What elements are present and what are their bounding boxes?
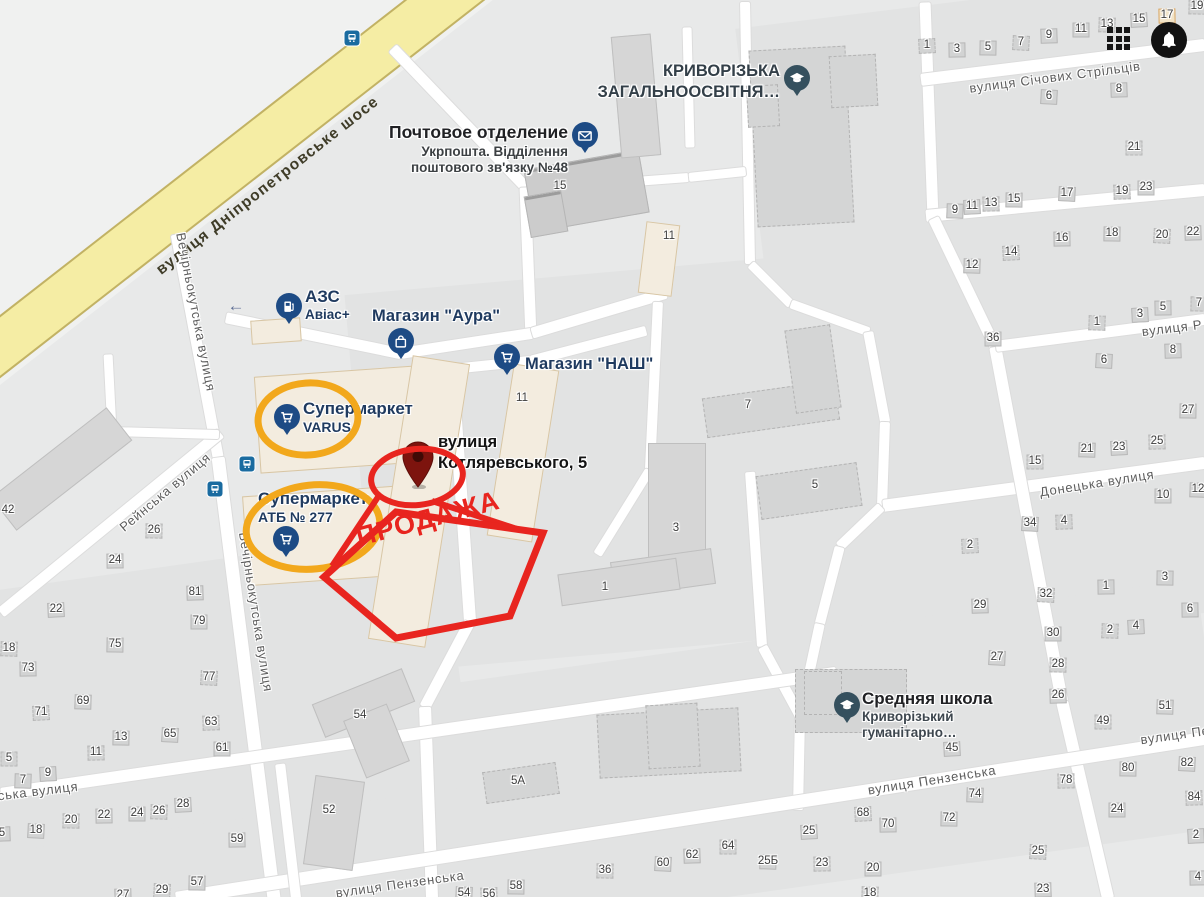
house-number: 21 [1128,141,1141,153]
house-number: 18 [30,824,43,836]
house-number: 27 [991,651,1004,663]
house-number: 10 [1157,489,1170,501]
house-number: 11 [1075,23,1087,35]
poi-label-azs-avias[interactable]: АЗСАвіас+ [305,286,350,323]
house-number: 1 [1094,316,1100,328]
poi-pin-supermarket-varus[interactable] [272,404,302,434]
poi-label-magazin-nash[interactable]: Магазин "НАШ" [525,354,653,375]
poi-pin-post-office[interactable] [570,122,600,152]
oneway-arrow-icon: ← [228,296,245,316]
poi-title: Магазин "НАШ" [525,354,653,375]
house-number: 34 [1024,517,1037,529]
destination-label[interactable]: вулицяКотляревського, 5 [438,432,587,473]
house-number: 12 [966,259,979,271]
house-number: 4 [1061,515,1067,527]
house-number: 27 [117,889,130,897]
building [524,190,569,238]
house-number: 73 [22,662,35,674]
house-number: 9 [952,204,958,216]
street-label: Рейнська вулиця [117,450,214,535]
house-number: 57 [191,876,204,888]
house-number: 74 [969,788,982,800]
house-number: 13 [115,731,128,743]
house-number: 51 [1159,700,1172,712]
house-number: 22 [1187,226,1200,238]
house-number: 49 [1097,715,1110,727]
house-number: 26 [148,524,161,536]
poi-pin-tail [283,315,295,324]
transit-stop-icon[interactable] [208,482,223,497]
house-number: 26 [1052,689,1065,701]
house-number: 20 [65,814,78,826]
house-number: 63 [205,716,218,728]
house-number: 6 [1101,354,1107,366]
house-number: 6 [1187,603,1193,615]
house-number: 15 [1008,193,1021,205]
poi-title: Магазин "Аура" [372,306,500,327]
house-number: 60 [657,857,670,869]
house-number: 5 [0,827,5,839]
poi-title: ЗАГАЛЬНООСВІТНЯ… [598,82,780,103]
poi-title: Супермаркет [258,488,368,509]
house-number: 18 [3,642,16,654]
house-number: 15 [1133,13,1146,25]
house-number: 15 [1029,455,1042,467]
house-number: 28 [1052,658,1065,670]
house-number: 17 [1061,187,1074,199]
house-number: 7 [1196,297,1202,309]
notifications-button[interactable] [1151,22,1187,58]
house-number: 25 [1032,845,1045,857]
poi-pin-tail [579,144,591,153]
building [645,703,700,770]
house-number: 42 [2,504,15,516]
house-number: 69 [77,695,90,707]
house-number: 65 [164,728,177,740]
house-number: 25Б [758,855,778,867]
house-number: 62 [686,849,699,861]
house-number: 1 [602,581,608,593]
house-number: 18 [864,887,877,897]
bell-icon [1159,30,1179,50]
poi-pin-tail [280,548,292,557]
poi-title: Супермаркет [303,398,413,419]
house-number: 9 [1046,29,1052,41]
house-number: 72 [943,812,956,824]
house-number: 11 [966,200,978,212]
destination-label-line1: вулиця [438,432,587,453]
house-number: 22 [50,603,63,615]
road [687,165,747,182]
apps-grid-icon[interactable] [1107,27,1131,51]
house-number: 28 [177,798,190,810]
map-viewport[interactable]: 1357911131517196821911131517192312141618… [0,0,1204,897]
poi-subtitle: гуманітарно… [862,725,992,741]
house-number: 8 [1116,83,1122,95]
house-number: 36 [599,864,612,876]
house-number: 82 [1181,757,1194,769]
house-number: 2 [1107,624,1113,636]
house-number: 24 [1111,803,1124,815]
house-number: 54 [354,709,367,721]
poi-pin-tail [791,87,803,96]
house-number: 19 [1116,185,1129,197]
house-number: 3 [954,43,960,55]
house-number: 30 [1047,627,1060,639]
house-number: 4 [1133,620,1139,632]
house-number: 64 [722,840,735,852]
poi-pin-tail [841,714,853,723]
house-number: 78 [1060,774,1073,786]
house-number: 81 [189,586,202,598]
house-number: 23 [1113,441,1126,453]
destination-pin[interactable] [401,441,435,489]
building [828,54,878,108]
poi-label-post-office[interactable]: Почтовое отделениеУкрпошта. Відділенняпо… [389,122,568,176]
house-number: 11 [663,230,675,242]
house-number: 59 [231,833,244,845]
poi-subtitle: поштового зв'язку №48 [389,160,568,176]
house-number: 24 [131,807,144,819]
house-number: 3 [1162,571,1168,583]
house-number: 20 [867,862,880,874]
house-number: 45 [946,742,959,754]
poi-pin-tail [501,366,513,375]
poi-label-school-kryvorizka[interactable]: КРИВОРІЗЬКАЗАГАЛЬНООСВІТНЯ… [598,61,780,102]
house-number: 80 [1122,762,1135,774]
house-number: 23 [816,857,829,869]
house-number: 18 [1106,227,1119,239]
destination-label-line2: Котляревського, 5 [438,453,587,474]
transit-stop-icon[interactable] [345,31,360,46]
poi-pin-tail [395,350,407,359]
house-number: 15 [554,180,567,192]
house-number: 5А [511,775,525,787]
house-number: 56 [483,888,496,897]
poi-pin-tail [281,426,293,435]
house-number: 54 [458,887,471,897]
house-number: 29 [156,884,169,896]
house-number: 68 [857,807,870,819]
poi-title: КРИВОРІЗЬКА [598,61,780,82]
house-number: 17 [1161,9,1174,21]
poi-title: Средняя школа [862,688,992,709]
house-number: 5 [985,41,991,53]
poi-label-magazin-aura[interactable]: Магазин "Аура" [372,306,500,327]
house-number: 3 [1137,308,1143,320]
house-number: 8 [1170,344,1176,356]
house-number: 2 [967,539,973,551]
house-number: 58 [510,880,523,892]
house-number: 75 [109,638,122,650]
poi-subtitle: VARUS [303,419,413,436]
house-number: 9 [45,767,51,779]
house-number: 61 [216,742,229,754]
house-number: 77 [203,671,216,683]
house-number: 71 [35,706,48,718]
poi-pin-magazin-aura[interactable] [386,328,416,358]
house-number: 23 [1037,883,1050,895]
house-number: 84 [1188,791,1201,803]
house-number: 1 [924,39,930,51]
poi-title: АЗС [305,286,350,307]
house-number: 13 [985,197,998,209]
house-number: 79 [193,615,206,627]
house-number: 12 [1192,483,1204,495]
house-number: 29 [974,599,987,611]
house-number: 32 [1040,588,1053,600]
poi-title: Почтовое отделение [389,122,568,144]
house-number: 21 [1081,443,1094,455]
poi-pin-school-kryvorizka[interactable] [782,65,812,95]
poi-pin-srednyaya-shkola[interactable] [832,692,862,722]
house-number: 1 [1103,580,1109,592]
poi-subtitle: Авіас+ [305,307,350,323]
house-number: 23 [1140,181,1153,193]
house-number: 6 [1046,90,1052,102]
house-number: 7 [745,399,751,411]
house-number: 4 [1195,871,1201,883]
poi-label-srednyaya-shkola[interactable]: Средняя школаКриворізькийгуманітарно… [862,688,992,742]
house-number: 22 [98,809,111,821]
house-number: 14 [1005,246,1018,258]
house-number: 70 [882,818,895,830]
house-number: 19 [1191,0,1204,12]
poi-pin-supermarket-atb[interactable] [271,526,301,556]
house-number: 2 [1193,829,1199,841]
house-number: 16 [1056,232,1069,244]
poi-subtitle: Укрпошта. Відділення [389,144,568,160]
house-number: 25 [1151,435,1164,447]
poi-pin-magazin-nash[interactable] [492,344,522,374]
house-number: 20 [1156,229,1169,241]
transit-stop-icon[interactable] [240,457,255,472]
house-number: 27 [1182,404,1195,416]
house-number: 5 [1160,301,1166,313]
poi-subtitle: АТБ № 277 [258,509,368,526]
house-number: 5 [6,752,12,764]
poi-pin-azs-avias[interactable] [274,293,304,323]
house-number: 26 [153,805,166,817]
poi-subtitle: Криворізький [862,709,992,725]
house-number: 52 [323,804,336,816]
building [648,443,706,563]
house-number: 11 [90,746,102,758]
poi-label-supermarket-varus[interactable]: СупермаркетVARUS [303,398,413,436]
house-number: 25 [803,825,816,837]
house-number: 5 [812,479,818,491]
house-number: 24 [109,554,122,566]
house-number: 11 [516,392,528,404]
house-number: 36 [987,332,1000,344]
house-number: 7 [1018,36,1024,48]
house-number: 3 [673,522,679,534]
poi-label-supermarket-atb[interactable]: СупермаркетАТБ № 277 [258,488,368,526]
